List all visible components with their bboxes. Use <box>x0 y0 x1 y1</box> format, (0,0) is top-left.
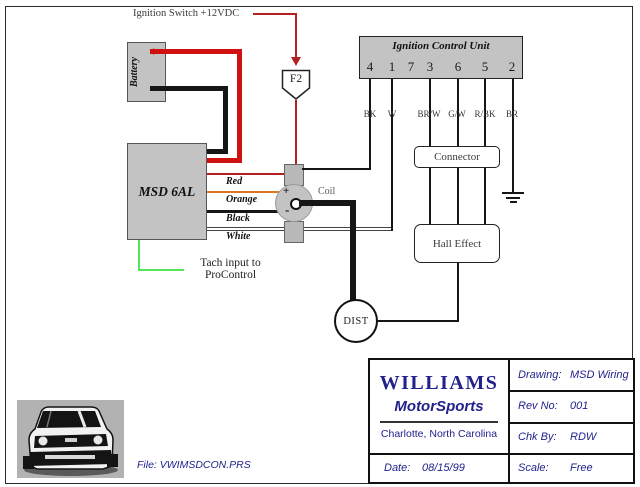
coil-bottom-terminal <box>284 221 304 243</box>
ignition-feed-wire-v <box>295 13 297 58</box>
drawing-label: Drawing: <box>518 369 561 381</box>
msd-red-wire <box>207 173 284 175</box>
wire-code-bk: BK <box>358 109 382 119</box>
br-wire <box>512 79 514 193</box>
division-underline <box>380 421 498 423</box>
rev-value: 001 <box>570 400 588 412</box>
company-name: WILLIAMS <box>370 372 508 395</box>
icu-pin-3: 3 <box>424 59 436 75</box>
battery-positive-wire <box>150 49 242 54</box>
distributor-label: DIST <box>343 316 368 327</box>
msd-orange-wire <box>207 191 279 193</box>
battery-positive-wire <box>237 49 242 163</box>
icu-pin-4: 4 <box>364 59 376 75</box>
coil-label: Coil <box>318 186 335 197</box>
title-block-vertical-divider <box>508 360 510 482</box>
icu-pin-2: 2 <box>506 59 518 75</box>
coil-minus: - <box>285 202 289 218</box>
scale-label: Scale: <box>518 462 549 474</box>
file-label: File: VWIMSDCON.PRS <box>137 459 251 471</box>
distributor-circle: DIST <box>334 299 378 343</box>
wiring-diagram-page: Ignition Switch +12VDC F2 Battery + - MS… <box>0 0 640 487</box>
wire-label-orange: Orange <box>226 194 257 205</box>
hall-effect-label: Hall Effect <box>433 238 481 250</box>
tach-note-line1: Tach input to <box>168 257 293 269</box>
bk-wire <box>302 168 371 170</box>
title-block: WILLIAMS MotorSports Charlotte, North Ca… <box>368 358 635 484</box>
icu-pin-1: 1 <box>386 59 398 75</box>
tach-note: Tach input to ProControl <box>168 257 293 281</box>
hall-effect-box: Hall Effect <box>414 224 500 263</box>
battery-negative-wire <box>205 149 228 154</box>
ignition-control-unit-box: Ignition Control Unit 4 1 7 3 6 5 2 <box>359 36 523 79</box>
date-label: Date: <box>384 462 410 474</box>
icu-title: Ignition Control Unit <box>360 40 522 52</box>
msd-6al-box: MSD 6AL <box>127 143 207 240</box>
title-block-divider <box>510 422 633 424</box>
wire-code-br: BR <box>498 109 526 119</box>
ground-icon <box>502 192 524 194</box>
title-block-divider <box>370 453 508 455</box>
wire-label-red: Red <box>226 176 242 187</box>
battery-label: Battery <box>129 46 140 98</box>
company-division: MotorSports <box>370 398 508 415</box>
icu-pin-5: 5 <box>479 59 491 75</box>
connector-label: Connector <box>434 151 480 163</box>
date-value: 08/15/99 <box>422 462 465 474</box>
title-block-divider <box>510 453 633 455</box>
gw-wire <box>457 168 459 224</box>
coil-output-wire <box>350 200 356 304</box>
company-location: Charlotte, North Carolina <box>370 428 508 440</box>
hall-to-dist-wire <box>457 263 459 322</box>
msd-6al-label: MSD 6AL <box>139 184 196 200</box>
tach-note-line2: ProControl <box>168 269 293 281</box>
wire-label-white: White <box>226 231 250 242</box>
connector-box: Connector <box>414 146 500 168</box>
coil-plus: + <box>283 185 289 197</box>
chk-value: RDW <box>570 431 596 443</box>
battery-negative-wire <box>223 86 228 154</box>
fuse-to-coil-wire <box>295 100 297 165</box>
rev-label: Rev No: <box>518 400 558 412</box>
brw-wire <box>429 168 431 224</box>
battery-positive-wire <box>205 158 242 163</box>
title-block-divider <box>510 390 633 392</box>
drawing-value: MSD Wiring <box>570 369 629 381</box>
hall-to-dist-wire <box>378 320 459 322</box>
chk-label: Chk By: <box>518 431 557 443</box>
w-wire <box>391 79 393 231</box>
coil-top-terminal <box>284 164 304 186</box>
icu-pin-6: 6 <box>452 59 464 75</box>
bk-wire <box>369 79 371 170</box>
ignition-feed-wire-h <box>253 13 297 15</box>
tach-wire <box>138 240 140 271</box>
icu-pin-7: 7 <box>405 59 417 75</box>
wire-code-w: W <box>380 109 404 119</box>
fuse-label: F2 <box>281 73 311 85</box>
rbk-wire <box>484 168 486 224</box>
coil-output-wire <box>299 200 356 206</box>
ground-icon <box>510 201 517 203</box>
ignition-switch-label: Ignition Switch +12VDC <box>133 8 239 19</box>
scale-value: Free <box>570 462 593 474</box>
car-photo <box>17 400 124 478</box>
battery-negative-wire <box>150 86 228 91</box>
ground-icon <box>506 197 520 199</box>
arrow-down-icon <box>291 57 301 66</box>
wire-label-black: Black <box>226 213 250 224</box>
